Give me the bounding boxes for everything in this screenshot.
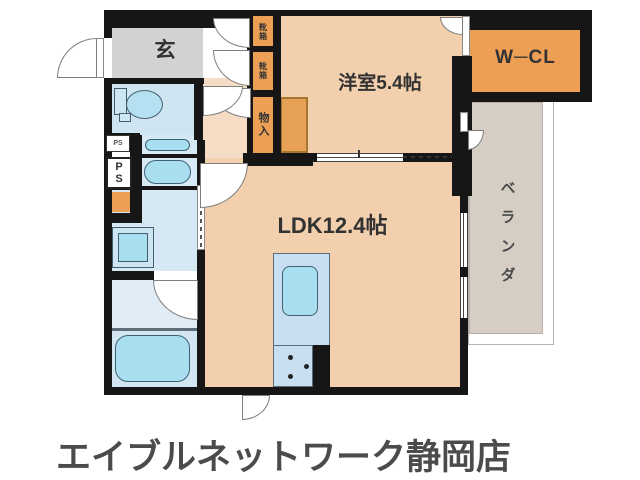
ps-small-label: PS xyxy=(113,140,122,147)
wcl-door-leaf xyxy=(462,16,470,56)
room-ldk xyxy=(203,158,460,387)
western-room-label: 洋室5.4帖 xyxy=(320,70,440,92)
veranda-door-leaf xyxy=(460,112,468,132)
wall-strip-sep1 xyxy=(253,46,273,52)
window-ldk-veranda-2 xyxy=(460,277,468,318)
window-west-ldk-slider xyxy=(317,153,403,162)
storage-label: 物入 xyxy=(253,100,273,150)
kitchen-sink-icon xyxy=(282,266,318,316)
entry-wall-gap xyxy=(104,38,112,78)
slider-dashed-track xyxy=(403,156,452,158)
entry-door-arc xyxy=(57,38,97,78)
ldk-label: LDK12.4帖 xyxy=(270,211,395,237)
box-ps-small: PS xyxy=(106,135,130,152)
footer-store-name: エイブルネットワーク静岡店 xyxy=(56,429,516,479)
shoebox-upper-label: 靴箱 xyxy=(253,19,273,45)
wall-ps-bottom xyxy=(104,213,136,223)
wall-strip-right xyxy=(273,16,281,156)
wall-kitchen-chunk xyxy=(313,345,330,387)
washer-icon xyxy=(118,233,148,262)
wall-toilet-right xyxy=(194,84,203,140)
wall-top-mid xyxy=(250,10,466,16)
wall-basin-sep xyxy=(138,154,198,158)
wall-genkan-bottom xyxy=(104,78,204,84)
toilet-tank-icon xyxy=(114,88,127,115)
wall-top-right xyxy=(462,10,592,30)
closet-block xyxy=(280,97,308,153)
washbasin-icon-small xyxy=(145,139,190,151)
wall-strip-sep2 xyxy=(253,90,273,97)
toilet-button-icon xyxy=(119,113,131,122)
stove-burner-dot xyxy=(304,364,309,369)
shoebox-lower-label: 靴箱 xyxy=(253,55,273,87)
stove-burner-dot xyxy=(288,374,293,379)
bathtub-icon xyxy=(115,335,190,382)
wall-wcl-bottom xyxy=(452,92,592,102)
toilet-bowl-icon xyxy=(126,90,163,119)
stove-burner-dot xyxy=(288,355,293,360)
wall-wcl-right xyxy=(580,10,592,102)
floor-plan: PS PS 玄 洋室5.4帖 W─CL LDK12.4帖 靴箱 靴箱 物入 ベラ… xyxy=(0,0,640,480)
window-ldk-veranda-1 xyxy=(460,213,468,267)
wcl-label: W─CL xyxy=(483,46,568,70)
genkan-label: 玄 xyxy=(130,34,200,64)
veranda-label: ベランダ xyxy=(495,150,519,325)
bottom-door-arc xyxy=(242,395,270,420)
wall-bottom xyxy=(104,387,468,395)
wall-laundry-bottom xyxy=(104,271,154,280)
ps-large-label: PS xyxy=(113,161,125,185)
wall-bath-divider xyxy=(112,328,197,331)
washbasin-icon-large xyxy=(144,160,191,184)
window-slider-tick xyxy=(358,150,360,158)
wall-under-closet xyxy=(243,153,313,166)
box-ps-large: PS xyxy=(106,157,132,189)
